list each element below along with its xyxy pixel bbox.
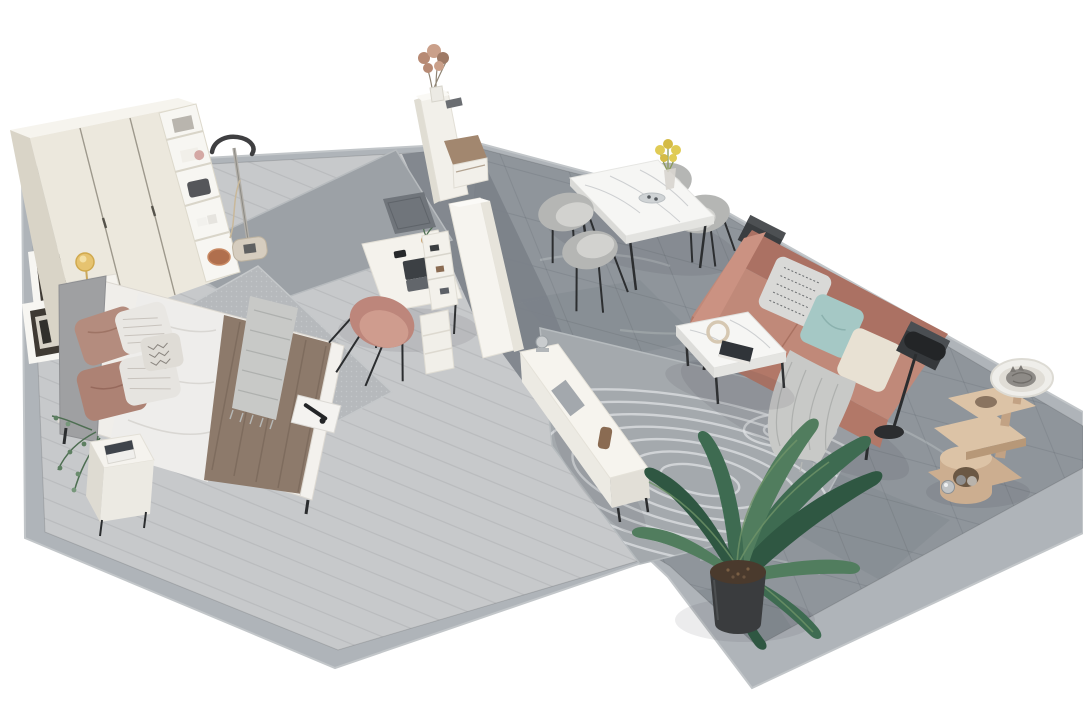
serving-plate-icon — [639, 193, 665, 203]
chrome-ball-toy-icon — [942, 481, 955, 494]
copper-basket-icon — [208, 249, 230, 265]
apartment-3d-floorplan — [0, 0, 1083, 707]
drawer-unit — [420, 310, 454, 374]
dried-flowers-icon — [418, 44, 449, 88]
cat-perch — [991, 359, 1053, 397]
plant-pot — [710, 560, 766, 634]
figurine-icon — [536, 336, 549, 352]
apartment-render-page — [0, 0, 1083, 707]
